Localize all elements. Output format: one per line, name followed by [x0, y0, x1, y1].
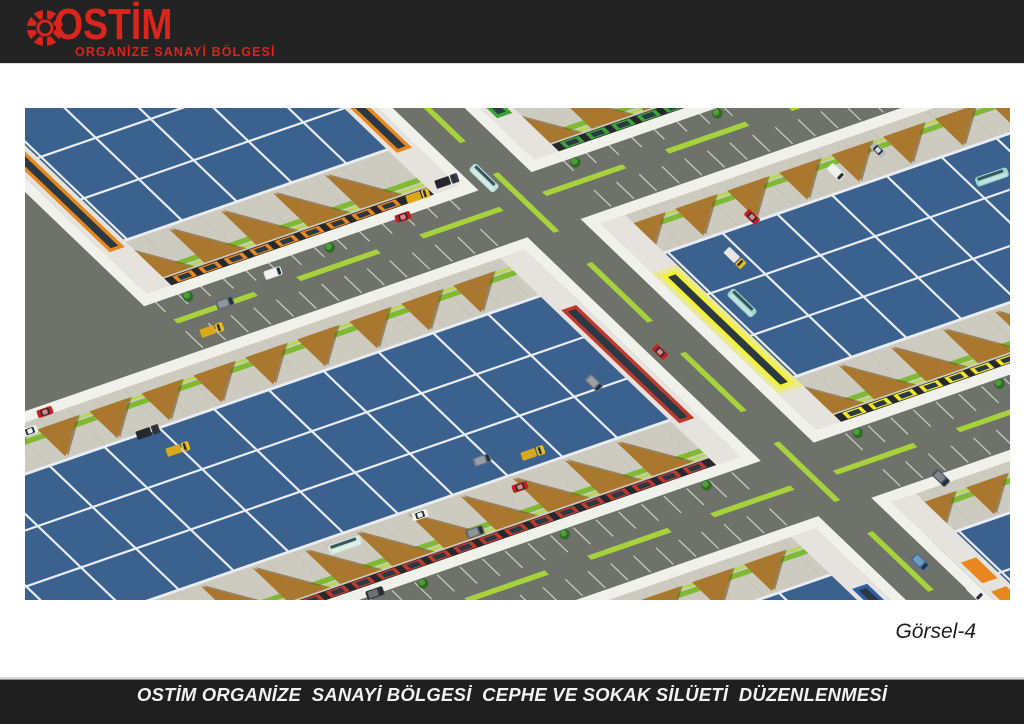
slide-page: OSTİM ORGANİZE SANAYİ BÖLGESİ Görsel-4 O… [0, 0, 1024, 724]
brand-text: OSTİM [54, 3, 172, 47]
brand-tagline: ORGANİZE SANAYİ BÖLGESİ [75, 45, 276, 59]
ostim-logo: OSTİM ORGANİZE SANAYİ BÖLGESİ [24, 4, 324, 60]
header-bar: OSTİM ORGANİZE SANAYİ BÖLGESİ [0, 0, 1024, 64]
figure-caption: Görsel-4 [895, 620, 976, 644]
footer-bar: OSTİM ORGANİZE SANAYİ BÖLGESİ CEPHE VE S… [0, 679, 1024, 724]
site-3d-render [25, 108, 1010, 600]
footer-title: OSTİM ORGANİZE SANAYİ BÖLGESİ CEPHE VE S… [0, 684, 1024, 706]
